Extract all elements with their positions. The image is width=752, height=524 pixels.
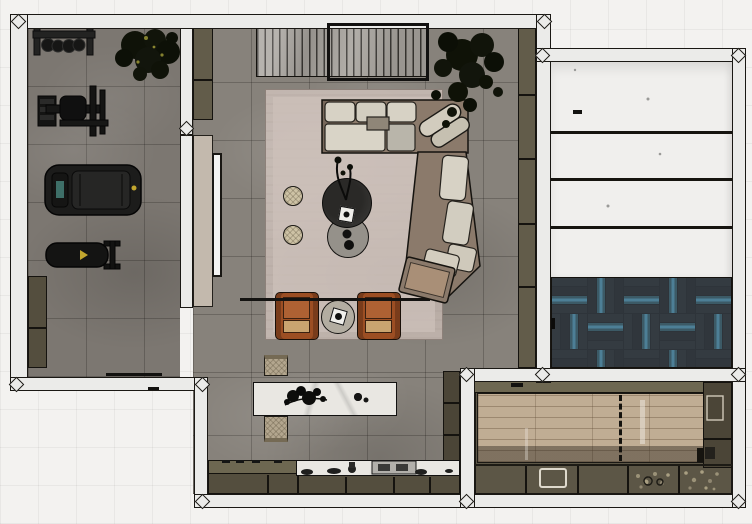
wall-gym-bottom: [10, 377, 208, 391]
counter-division: [345, 477, 347, 495]
counter-division: [429, 477, 431, 495]
island-bench-top: [264, 355, 288, 376]
cabinet-division: [444, 434, 459, 436]
cabinet-division: [525, 466, 527, 494]
pouf: [283, 186, 303, 206]
sliding-door-track: [106, 373, 162, 376]
wall-shelf: [518, 24, 536, 368]
counter-division: [267, 475, 269, 495]
divider-cabinet: [193, 28, 213, 120]
wood-divider-dashed-line: [619, 395, 622, 461]
wall-mid-vertical: [194, 377, 208, 508]
cabinet-tray: [539, 468, 567, 488]
wall-gym-divider-lower: [180, 135, 193, 308]
herringbone-carpet: [551, 277, 732, 368]
panel-dash: [573, 110, 582, 114]
console-line: [240, 298, 430, 301]
wall-rightwing-right: [732, 48, 746, 508]
shelf-division: [519, 286, 535, 288]
strip-dash: [511, 383, 523, 387]
door-handle: [551, 318, 555, 329]
cabinet-division: [577, 466, 579, 494]
counter-division: [393, 477, 395, 495]
island-bench-bottom: [264, 416, 288, 442]
wall-rightwing-top: [536, 48, 746, 62]
paneled-room-floor: [551, 62, 732, 277]
counter-marble-top: [296, 460, 460, 476]
cabinet-top-strip: [475, 382, 703, 393]
shelf-division: [519, 94, 535, 96]
panel-seam: [551, 226, 732, 229]
divider-door-beige: [193, 135, 213, 307]
wall-kitchen-divider: [460, 368, 475, 508]
cabinet-division: [29, 327, 46, 329]
wall-top: [10, 14, 551, 29]
armchair-cushion: [283, 320, 310, 333]
gym-floor: [28, 28, 180, 377]
wall-mirror: [212, 153, 222, 277]
shelf-division: [519, 158, 535, 160]
armchair-cushion: [365, 320, 392, 333]
cabinet-division: [627, 466, 629, 494]
herringbone-pattern: [552, 278, 732, 368]
kitchen-tall-cabinet: [443, 371, 460, 467]
door-handle: [148, 387, 159, 390]
wood-floor-panel: [477, 393, 708, 463]
gym-storage-cabinet: [28, 276, 47, 368]
cabinet-column-right: [703, 382, 732, 468]
wall-carpetroom-bottom: [460, 368, 746, 382]
cabinet-division: [444, 402, 459, 404]
counter-left-top: [209, 461, 297, 474]
wall-gym-divider-upper: [180, 28, 193, 135]
cabinet-division: [678, 466, 680, 494]
panel-seam: [551, 178, 732, 181]
pouf: [283, 225, 303, 245]
shelf-division: [519, 223, 535, 225]
kitchen-island: [253, 382, 397, 416]
wall-living-right: [536, 14, 551, 383]
media-console-frame: [327, 23, 429, 81]
floor-plan-canvas: [0, 0, 752, 524]
panel-seam: [551, 131, 732, 134]
coffee-table-tray: [338, 206, 355, 223]
cabinet-division: [704, 438, 731, 440]
cabinet-front-edge: [475, 464, 732, 466]
cabinet-division: [194, 79, 212, 81]
wall-left: [10, 14, 28, 391]
